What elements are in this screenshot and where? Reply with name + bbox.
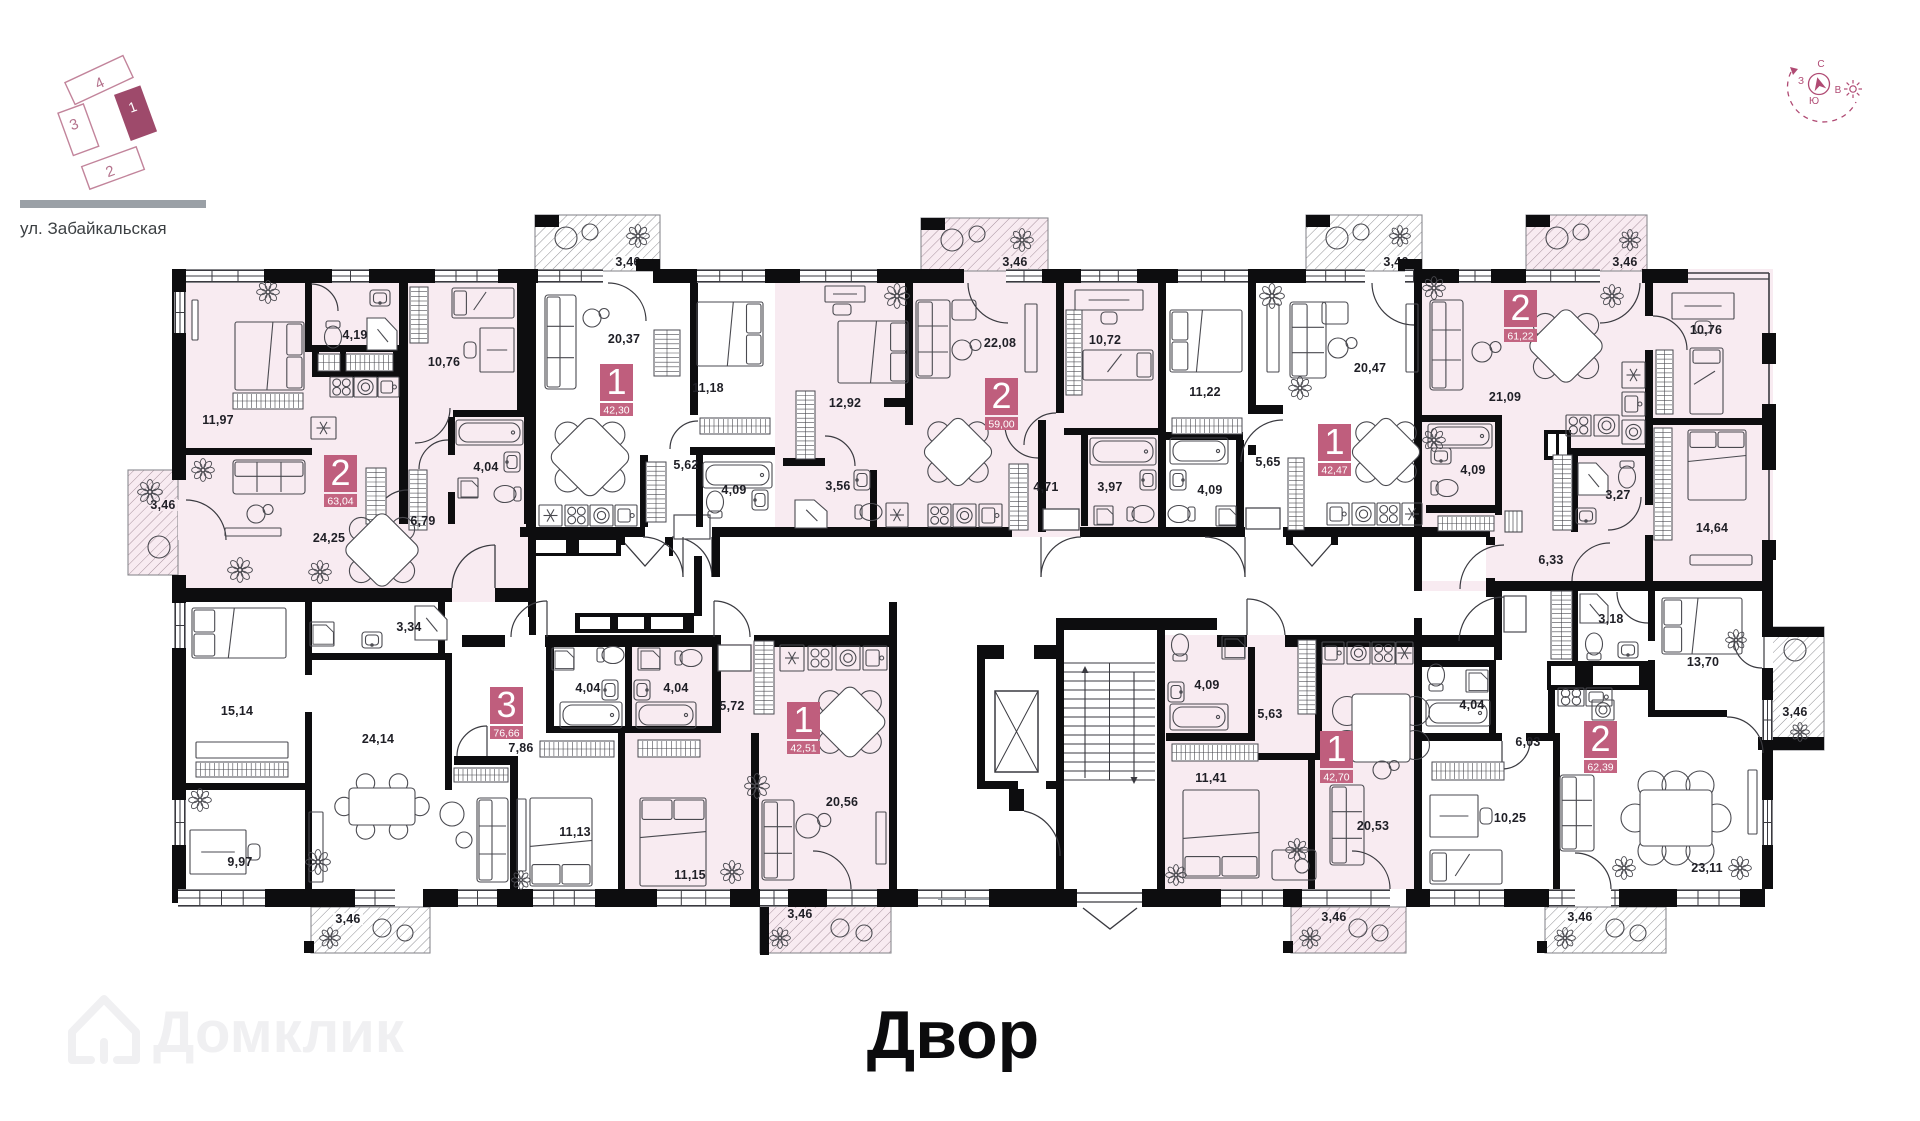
svg-text:62,39: 62,39	[1587, 762, 1613, 774]
svg-text:3,56: 3,56	[825, 479, 850, 493]
svg-text:6,33: 6,33	[1538, 553, 1563, 567]
svg-text:13,70: 13,70	[1687, 655, 1719, 669]
svg-text:5,63: 5,63	[1257, 707, 1282, 721]
svg-text:4,19: 4,19	[342, 328, 367, 342]
svg-text:3,46: 3,46	[335, 912, 360, 926]
svg-text:4,09: 4,09	[721, 483, 746, 497]
svg-text:11,22: 11,22	[1189, 385, 1221, 399]
svg-text:Домклик: Домклик	[153, 1000, 405, 1065]
svg-text:42,47: 42,47	[1321, 465, 1347, 477]
svg-text:1: 1	[1326, 728, 1346, 769]
svg-text:42,30: 42,30	[603, 405, 629, 417]
svg-text:1: 1	[793, 699, 813, 740]
svg-text:1: 1	[606, 361, 626, 402]
svg-text:11,13: 11,13	[559, 825, 591, 839]
svg-text:2: 2	[1510, 287, 1530, 328]
svg-text:3,46: 3,46	[1782, 705, 1807, 719]
svg-text:3,46: 3,46	[1567, 910, 1592, 924]
svg-text:2: 2	[1590, 718, 1610, 759]
svg-text:2: 2	[330, 452, 350, 493]
svg-text:10,76: 10,76	[428, 355, 460, 369]
svg-text:3,18: 3,18	[1598, 612, 1623, 626]
svg-text:76,66: 76,66	[493, 728, 519, 740]
svg-text:14,64: 14,64	[1696, 521, 1728, 535]
svg-text:20,56: 20,56	[826, 795, 858, 809]
svg-text:12,92: 12,92	[829, 396, 861, 410]
svg-text:11,18: 11,18	[692, 381, 724, 395]
svg-text:3,46: 3,46	[1321, 910, 1346, 924]
svg-text:11,97: 11,97	[202, 413, 234, 427]
svg-text:6,03: 6,03	[1515, 735, 1540, 749]
svg-text:4,04: 4,04	[473, 460, 498, 474]
svg-text:5,65: 5,65	[1255, 455, 1280, 469]
svg-text:4,04: 4,04	[663, 681, 688, 695]
svg-text:10,76: 10,76	[1690, 323, 1722, 337]
svg-text:3,46: 3,46	[787, 907, 812, 921]
svg-text:15,14: 15,14	[221, 704, 253, 718]
svg-text:10,25: 10,25	[1494, 811, 1526, 825]
svg-text:7,86: 7,86	[508, 741, 533, 755]
svg-text:21,09: 21,09	[1489, 390, 1521, 404]
svg-text:4,09: 4,09	[1460, 463, 1485, 477]
svg-text:9,97: 9,97	[227, 855, 252, 869]
svg-text:42,51: 42,51	[790, 743, 816, 755]
svg-text:20,47: 20,47	[1354, 361, 1386, 375]
svg-text:1: 1	[1324, 421, 1344, 462]
svg-text:Ю: Ю	[1809, 96, 1819, 107]
svg-text:11,41: 11,41	[1195, 771, 1227, 785]
svg-text:10,72: 10,72	[1089, 333, 1121, 347]
svg-text:С: С	[1817, 59, 1824, 70]
svg-text:3,34: 3,34	[396, 620, 421, 634]
svg-text:22,08: 22,08	[984, 336, 1016, 350]
svg-text:В: В	[1835, 85, 1842, 96]
svg-text:3,46: 3,46	[1002, 255, 1027, 269]
svg-text:5,62: 5,62	[673, 458, 698, 472]
svg-text:42,70: 42,70	[1323, 772, 1349, 784]
svg-text:23,11: 23,11	[1691, 861, 1723, 875]
svg-text:Двор: Двор	[867, 997, 1039, 1073]
svg-text:3: 3	[496, 684, 516, 725]
svg-text:20,53: 20,53	[1357, 819, 1389, 833]
svg-text:З: З	[1798, 76, 1804, 87]
svg-text:3,97: 3,97	[1097, 480, 1122, 494]
svg-text:63,04: 63,04	[327, 496, 353, 508]
svg-text:3,46: 3,46	[1612, 255, 1637, 269]
svg-text:24,14: 24,14	[362, 732, 394, 746]
svg-text:24,25: 24,25	[313, 531, 345, 545]
svg-text:4,09: 4,09	[1194, 678, 1219, 692]
svg-text:6,79: 6,79	[410, 514, 435, 528]
svg-text:11,15: 11,15	[674, 868, 706, 882]
svg-text:20,37: 20,37	[608, 332, 640, 346]
svg-text:61,22: 61,22	[1507, 331, 1533, 343]
svg-text:ул. Забайкальская: ул. Забайкальская	[20, 219, 167, 238]
svg-text:4,04: 4,04	[1459, 698, 1484, 712]
svg-text:5,72: 5,72	[719, 699, 744, 713]
svg-text:4,09: 4,09	[1197, 483, 1222, 497]
svg-text:4,04: 4,04	[575, 681, 600, 695]
svg-text:59,00: 59,00	[988, 419, 1014, 431]
svg-text:4,71: 4,71	[1033, 480, 1058, 494]
svg-text:3,27: 3,27	[1605, 488, 1630, 502]
svg-text:2: 2	[991, 375, 1011, 416]
